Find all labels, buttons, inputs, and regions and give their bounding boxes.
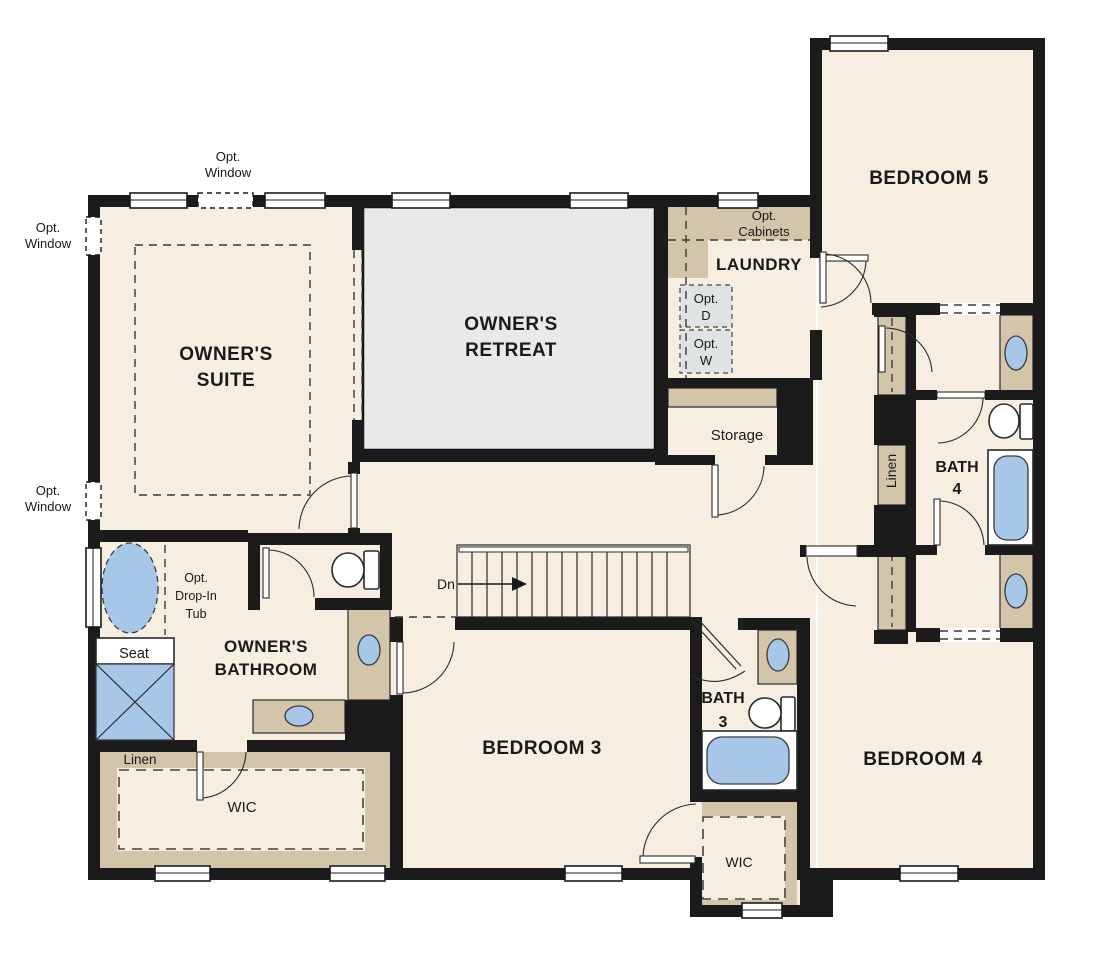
sink-icon: [767, 639, 789, 671]
window-icon: [392, 193, 450, 208]
window-icon: [330, 866, 385, 881]
room-label-owners-bathroom: OWNER'S: [224, 637, 308, 656]
label-opt-dryer-2: D: [701, 308, 710, 323]
drop-in-tub-icon: [102, 543, 158, 633]
bathtub-icon: [702, 731, 797, 790]
wall-wc-south: [315, 598, 392, 610]
wall-storage-east-block: [777, 380, 813, 465]
wall-storage-west: [655, 378, 668, 465]
wall-bath4-s-a: [916, 545, 937, 555]
dashed-opening: [940, 303, 1000, 315]
wall-bottom-bedroom3: [398, 868, 690, 880]
label-opt-cabinets: Opt.: [752, 208, 777, 223]
wall-wic2-north: [690, 790, 810, 802]
label-opt-window-left-upper: Opt.: [36, 220, 61, 235]
wall-wic2-west-lower: [690, 857, 702, 917]
wall-laundry-east-lower: [810, 330, 822, 380]
sink-icon: [285, 706, 313, 726]
sink-icon: [1005, 336, 1027, 370]
label-opt-drop-in-tub-3: Tub: [185, 607, 206, 621]
room-label-bedroom3: BEDROOM 3: [482, 738, 602, 759]
room-label-laundry: LAUNDRY: [716, 255, 802, 274]
wall-wc-north: [248, 533, 392, 545]
label-opt-cabinets-2: Cabinets: [738, 224, 790, 239]
wall-spine-cap-top: [874, 303, 908, 317]
stair-outline: [457, 545, 690, 617]
wall-suite-retreat-upper: [352, 207, 364, 250]
window-icon: [742, 903, 782, 918]
label-stairs-down: Dn: [437, 576, 455, 592]
label-opt-drop-in-tub-2: Drop-In: [175, 589, 217, 603]
window-icon: [570, 193, 628, 208]
wall-bath-south-west: [88, 740, 197, 752]
wall-spine-block1: [874, 395, 908, 445]
toilet-icon: [749, 697, 795, 731]
room-label-bedroom5: BEDROOM 5: [869, 168, 989, 189]
label-bedroom4-wic: WIC: [725, 854, 752, 870]
wall-vanity-s-a: [916, 628, 940, 642]
label-opt-washer-2: W: [700, 353, 713, 368]
wall-vanity-s-b: [1000, 628, 1033, 642]
wall-suite-east-stub: [348, 462, 360, 474]
room-label-bath4: BATH: [935, 459, 978, 476]
wall-suite-south: [88, 530, 248, 542]
storage-shelf: [668, 388, 777, 407]
wall-bath4-s-b: [985, 545, 1033, 555]
wall-bedroom4-n-b: [857, 545, 912, 557]
window-icon: [900, 866, 958, 881]
wall-wc-west: [248, 533, 260, 610]
wall-bedroom3-west-lower: [390, 695, 403, 868]
label-opt-dryer: Opt.: [694, 291, 719, 306]
wall-bath3-west: [690, 617, 702, 802]
wall-retreat-south: [352, 450, 660, 462]
label-opt-window-top-2: Window: [205, 165, 252, 180]
window-icon: [86, 548, 101, 627]
wall-spine-cap-bottom: [874, 630, 908, 644]
shower-icon: [96, 664, 174, 740]
room-label-bath3-2: 3: [719, 714, 728, 731]
room-label-owners-retreat: OWNER'S: [464, 314, 558, 335]
wall-right: [1033, 38, 1045, 880]
wall-spine-block2: [874, 505, 908, 550]
room-label-bath4-2: 4: [953, 481, 962, 498]
window-icon: [830, 36, 888, 51]
label-opt-window-left-upper-2: Window: [25, 236, 72, 251]
label-hall-linen: Linen: [883, 454, 899, 488]
hall-closet-bottom: [878, 550, 906, 630]
opt-window-icon-top: [198, 193, 253, 208]
wall-bath4-west: [906, 315, 916, 632]
wall-bedroom3-north: [455, 617, 692, 630]
wall-bedroom4-n-a: [800, 545, 806, 557]
sink-icon: [1005, 574, 1027, 608]
wall-bedroom3-west-upper: [390, 617, 403, 642]
room-label-owners-bathroom-2: BATHROOM: [215, 660, 318, 679]
floor-plan-page: OWNER'S SUITE OWNER'S RETREAT BEDROOM 5 …: [0, 0, 1093, 966]
wall-storage-south-east: [765, 455, 777, 465]
window-icon: [718, 193, 758, 208]
opt-window-icon-left-upper: [86, 217, 101, 255]
wall-bath-south-east: [247, 740, 390, 752]
wall-bath4-n-a: [916, 390, 937, 400]
wall-bedroom5-south-b: [1000, 303, 1033, 315]
label-owners-linen: Linen: [123, 752, 156, 767]
stair-rail: [459, 547, 688, 552]
room-label-bedroom4: BEDROOM 4: [863, 749, 983, 770]
toilet-icon: [989, 404, 1033, 439]
label-storage: Storage: [711, 427, 764, 444]
label-owners-wic: WIC: [227, 799, 256, 816]
wall-laundry-east-upper: [810, 195, 822, 258]
room-label-owners-retreat-2: RETREAT: [465, 340, 557, 361]
wall-bath-chunk: [345, 700, 390, 747]
label-opt-window-left-lower-2: Window: [25, 499, 72, 514]
label-seat: Seat: [119, 646, 149, 662]
sink-icon: [358, 635, 380, 665]
room-label-owners-suite-2: SUITE: [197, 370, 255, 391]
dashed-opening: [940, 628, 1000, 642]
bathtub-icon: [988, 450, 1033, 545]
label-opt-window-top: Opt.: [216, 149, 241, 164]
window-icon: [130, 193, 187, 208]
opt-cabinets-counter-side: [668, 240, 708, 278]
window-icon: [265, 193, 325, 208]
window-icon: [565, 866, 622, 881]
wall-storage-south-west: [655, 455, 715, 465]
window-icon: [155, 866, 210, 881]
wall-bedroom4-west: [797, 618, 810, 880]
room-label-bath3: BATH: [701, 690, 744, 707]
floor-plan-drawing: OWNER'S SUITE OWNER'S RETREAT BEDROOM 5 …: [0, 0, 1093, 966]
opt-window-icon-left-lower: [86, 482, 101, 520]
label-opt-drop-in-tub: Opt.: [184, 571, 208, 585]
room-label-owners-suite: OWNER'S: [179, 344, 273, 365]
label-opt-washer: Opt.: [694, 336, 719, 351]
wall-bath4-n-b: [985, 390, 1033, 400]
toilet-icon: [332, 551, 379, 589]
wall-laundry-west: [655, 195, 668, 380]
label-opt-window-left-lower: Opt.: [36, 483, 61, 498]
